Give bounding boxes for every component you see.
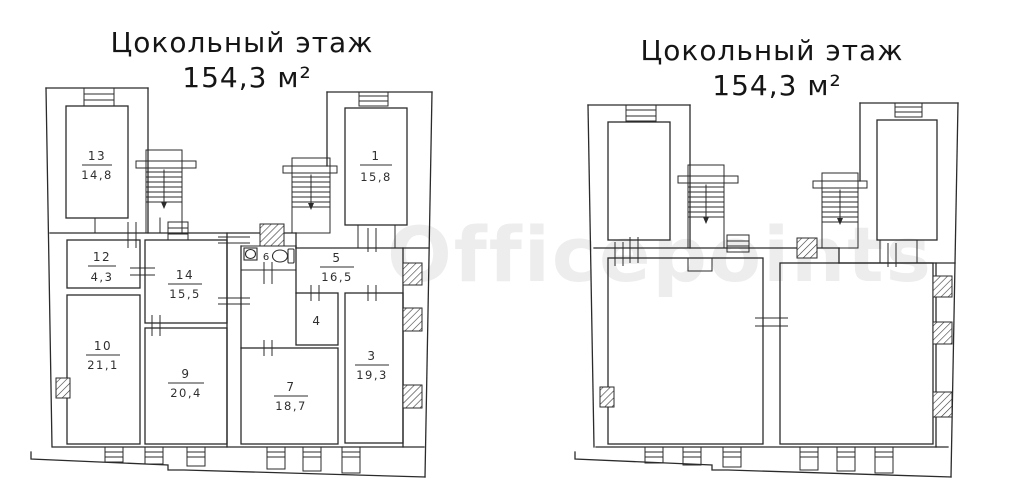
svg-text:16,5: 16,5	[321, 270, 353, 284]
left-plan-title: Цокольный этаж	[111, 26, 374, 59]
room-label-9: 9 20,4	[168, 367, 204, 400]
left-plan-room-walls	[66, 106, 407, 447]
room-label-12: 12 4,3	[88, 250, 116, 284]
svg-text:20,4: 20,4	[170, 386, 202, 400]
room-label-13: 13 14,8	[81, 149, 113, 182]
svg-text:10: 10	[94, 339, 112, 353]
sink-icon	[244, 248, 257, 260]
stairs-down-arrow-icon	[703, 185, 709, 224]
svg-text:21,1: 21,1	[87, 358, 119, 372]
right-plan-area-total: 154,3 м²	[712, 69, 841, 102]
room-label-1: 1 15,8	[360, 149, 392, 184]
svg-text:19,3: 19,3	[356, 368, 388, 382]
room-label-4: 4	[312, 314, 321, 328]
left-plan-staircase-right	[283, 158, 337, 233]
svg-text:14,8: 14,8	[81, 168, 113, 182]
watermark-text: Officepoints	[387, 210, 933, 299]
svg-text:9: 9	[181, 367, 190, 381]
right-plan-vent-shafts	[626, 103, 922, 121]
room-label-7: 7 18,7	[274, 380, 308, 413]
plans-svg: Officepoints Цокольный этаж 154,3 м²	[0, 0, 1024, 493]
svg-text:18,7: 18,7	[275, 399, 307, 413]
svg-text:6: 6	[263, 252, 269, 263]
svg-text:1: 1	[371, 149, 380, 163]
left-plan-staircase-middle	[136, 150, 196, 233]
stairs-down-arrow-icon	[161, 170, 167, 209]
svg-text:12: 12	[93, 250, 111, 264]
toilet-icon	[273, 249, 295, 263]
svg-text:14: 14	[176, 268, 194, 282]
left-plan-area-total: 154,3 м²	[182, 61, 311, 94]
svg-text:15,5: 15,5	[169, 287, 201, 301]
left-floor-plan: Цокольный этаж 154,3 м²	[31, 26, 432, 477]
right-plan-title: Цокольный этаж	[641, 34, 904, 67]
right-plan-windows	[645, 447, 893, 473]
svg-text:4,3: 4,3	[91, 270, 114, 284]
left-plan-windows	[105, 447, 360, 473]
room-label-6: 6	[263, 252, 269, 263]
room-label-5: 5 16,5	[320, 251, 354, 284]
floor-plan-screenshot: Officepoints Цокольный этаж 154,3 м²	[0, 0, 1024, 493]
svg-text:4: 4	[312, 314, 321, 328]
room-label-14: 14 15,5	[168, 268, 202, 301]
svg-text:13: 13	[88, 149, 106, 163]
svg-text:15,8: 15,8	[360, 170, 392, 184]
svg-text:3: 3	[367, 349, 376, 363]
room-label-10: 10 21,1	[86, 339, 120, 372]
svg-text:5: 5	[332, 251, 341, 265]
svg-text:7: 7	[286, 380, 295, 394]
room-label-3: 3 19,3	[355, 349, 389, 382]
left-plan-door-ticks	[128, 222, 376, 356]
